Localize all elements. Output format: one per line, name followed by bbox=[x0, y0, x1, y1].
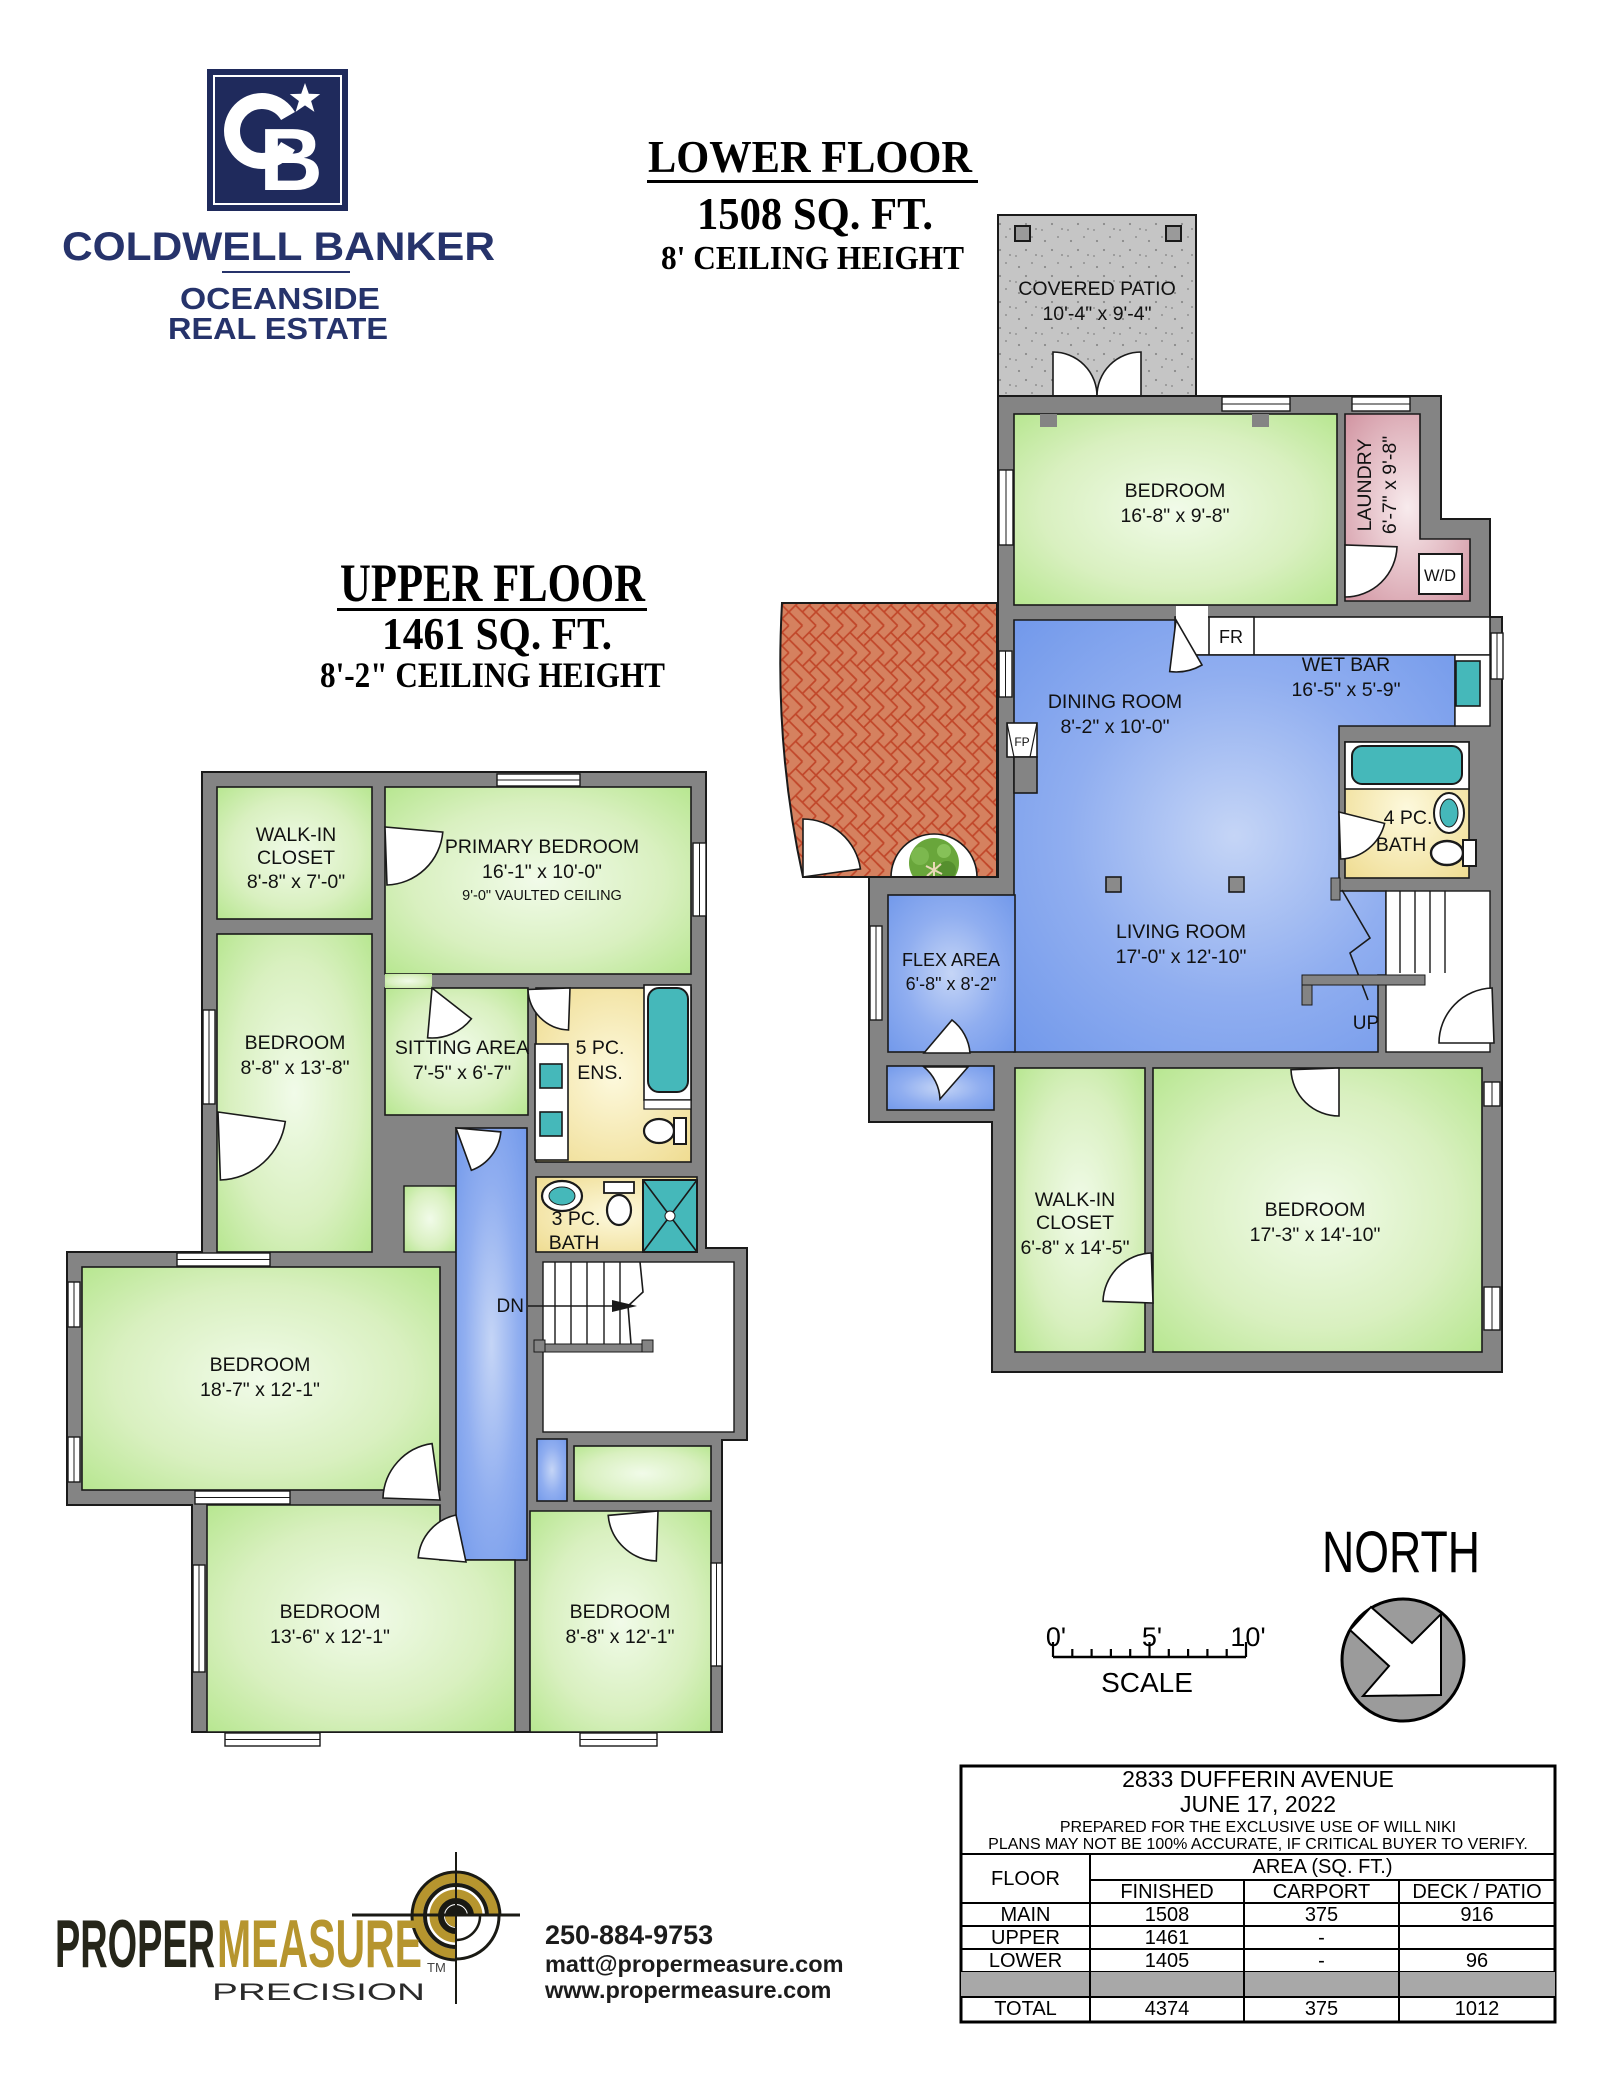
svg-text:5': 5' bbox=[1142, 1622, 1162, 1652]
svg-text:2833 DUFFERIN AVENUE: 2833 DUFFERIN AVENUE bbox=[1122, 1766, 1394, 1792]
svg-text:3 PC.: 3 PC. bbox=[552, 1208, 601, 1230]
svg-text:AREA (SQ. FT.): AREA (SQ. FT.) bbox=[1252, 1856, 1392, 1878]
svg-text:UP: UP bbox=[1353, 1013, 1379, 1034]
svg-text:8'-8" x 12'-1": 8'-8" x 12'-1" bbox=[565, 1626, 674, 1648]
svg-text:NORTH: NORTH bbox=[1322, 1520, 1480, 1585]
svg-text:CARPORT: CARPORT bbox=[1273, 1881, 1370, 1903]
svg-text:DINING ROOM: DINING ROOM bbox=[1048, 691, 1182, 713]
svg-text:UPPER: UPPER bbox=[991, 1927, 1060, 1949]
svg-text:JUNE 17, 2022: JUNE 17, 2022 bbox=[1180, 1791, 1336, 1817]
svg-text:1405: 1405 bbox=[1145, 1950, 1190, 1972]
svg-text:6'-8" x 8'-2": 6'-8" x 8'-2" bbox=[906, 974, 997, 994]
svg-text:FLEX AREA: FLEX AREA bbox=[902, 950, 1000, 970]
svg-text:6'-7" x 9'-8": 6'-7" x 9'-8" bbox=[1379, 436, 1401, 534]
svg-text:BEDROOM: BEDROOM bbox=[1125, 480, 1226, 502]
svg-text:BATH: BATH bbox=[549, 1232, 600, 1254]
svg-text:375: 375 bbox=[1305, 1904, 1338, 1926]
svg-text:BEDROOM: BEDROOM bbox=[570, 1601, 671, 1623]
svg-text:PRECISION: PRECISION bbox=[212, 1979, 425, 2006]
svg-text:PLANS MAY NOT BE 100% ACCURATE: PLANS MAY NOT BE 100% ACCURATE, IF CRITI… bbox=[988, 1836, 1528, 1853]
svg-text:18'-7" x 12'-1": 18'-7" x 12'-1" bbox=[200, 1379, 320, 1401]
svg-text:8'-2" x 10'-0": 8'-2" x 10'-0" bbox=[1060, 716, 1169, 738]
svg-text:1012: 1012 bbox=[1455, 1998, 1500, 2020]
svg-text:BEDROOM: BEDROOM bbox=[210, 1354, 311, 1376]
svg-text:MAIN: MAIN bbox=[1001, 1904, 1051, 1926]
svg-text:MEASURE: MEASURE bbox=[217, 1906, 422, 1982]
svg-text:SCALE: SCALE bbox=[1101, 1667, 1193, 1698]
svg-text:WALK-IN: WALK-IN bbox=[1035, 1189, 1116, 1211]
svg-text:10': 10' bbox=[1230, 1622, 1265, 1652]
svg-text:1461: 1461 bbox=[1145, 1927, 1190, 1949]
svg-text:10'-4" x 9'-4": 10'-4" x 9'-4" bbox=[1042, 303, 1151, 325]
svg-text:TOTAL: TOTAL bbox=[994, 1998, 1057, 2020]
svg-text:-: - bbox=[1318, 1950, 1325, 1972]
svg-text:BEDROOM: BEDROOM bbox=[245, 1032, 346, 1054]
svg-text:REAL ESTATE: REAL ESTATE bbox=[168, 311, 388, 346]
svg-text:8' CEILING HEIGHT: 8' CEILING HEIGHT bbox=[661, 240, 964, 277]
svg-text:DECK / PATIO: DECK / PATIO bbox=[1412, 1881, 1541, 1903]
svg-text:375: 375 bbox=[1305, 1998, 1338, 2020]
svg-text:ENS.: ENS. bbox=[577, 1062, 623, 1084]
svg-text:PRIMARY BEDROOM: PRIMARY BEDROOM bbox=[445, 836, 639, 858]
svg-text:1461 SQ. FT.: 1461 SQ. FT. bbox=[382, 609, 612, 659]
svg-text:PREPARED FOR THE EXCLUSIVE USE: PREPARED FOR THE EXCLUSIVE USE OF WILL N… bbox=[1060, 1819, 1456, 1836]
svg-text:BATH: BATH bbox=[1376, 834, 1427, 856]
svg-text:16'-8" x 9'-8": 16'-8" x 9'-8" bbox=[1120, 505, 1229, 527]
svg-text:17'-0" x 12'-10": 17'-0" x 12'-10" bbox=[1116, 946, 1247, 968]
svg-text:PROPER: PROPER bbox=[55, 1906, 215, 1982]
svg-text:LAUNDRY: LAUNDRY bbox=[1354, 439, 1376, 532]
svg-text:W/D: W/D bbox=[1424, 567, 1456, 585]
svg-text:TM: TM bbox=[427, 1960, 446, 1975]
svg-text:8'-8" x 7'-0": 8'-8" x 7'-0" bbox=[247, 871, 345, 893]
svg-text:FINISHED: FINISHED bbox=[1120, 1881, 1213, 1903]
svg-text:WET BAR: WET BAR bbox=[1302, 654, 1390, 676]
svg-text:LOWER FLOOR: LOWER FLOOR bbox=[648, 131, 973, 182]
svg-text:CLOSET: CLOSET bbox=[257, 847, 335, 869]
svg-text:16'-5" x 5'-9": 16'-5" x 5'-9" bbox=[1291, 679, 1400, 701]
svg-text:WALK-IN: WALK-IN bbox=[256, 824, 337, 846]
svg-text:SITTING AREA: SITTING AREA bbox=[395, 1037, 529, 1059]
svg-text:4374: 4374 bbox=[1145, 1998, 1190, 2020]
svg-text:1508 SQ. FT.: 1508 SQ. FT. bbox=[697, 189, 933, 239]
svg-text:matt@propermeasure.com: matt@propermeasure.com bbox=[545, 1951, 843, 1977]
svg-text:COVERED PATIO: COVERED PATIO bbox=[1018, 278, 1175, 300]
svg-text:8'-2" CEILING HEIGHT: 8'-2" CEILING HEIGHT bbox=[320, 655, 665, 695]
svg-text:4 PC.: 4 PC. bbox=[1384, 807, 1433, 829]
svg-text:FP: FP bbox=[1014, 735, 1029, 749]
svg-text:9'-0" VAULTED CEILING: 9'-0" VAULTED CEILING bbox=[462, 888, 622, 904]
svg-text:LIVING ROOM: LIVING ROOM bbox=[1116, 921, 1246, 943]
svg-text:1508: 1508 bbox=[1145, 1904, 1190, 1926]
svg-text:0': 0' bbox=[1046, 1622, 1066, 1652]
svg-text:96: 96 bbox=[1466, 1950, 1488, 1972]
svg-text:8'-8" x 13'-8": 8'-8" x 13'-8" bbox=[240, 1057, 349, 1079]
svg-text:CLOSET: CLOSET bbox=[1036, 1212, 1114, 1234]
svg-text:BEDROOM: BEDROOM bbox=[280, 1601, 381, 1623]
svg-text:COLDWELL BANKER: COLDWELL BANKER bbox=[62, 225, 495, 269]
svg-text:16'-1" x 10'-0": 16'-1" x 10'-0" bbox=[482, 861, 602, 883]
svg-text:6'-8" x 14'-5": 6'-8" x 14'-5" bbox=[1020, 1237, 1129, 1259]
svg-text:916: 916 bbox=[1460, 1904, 1493, 1926]
svg-text:B: B bbox=[259, 110, 323, 209]
svg-text:UPPER FLOOR: UPPER FLOOR bbox=[340, 553, 646, 613]
svg-text:BEDROOM: BEDROOM bbox=[1265, 1199, 1366, 1221]
svg-text:250-884-9753: 250-884-9753 bbox=[545, 1920, 713, 1950]
svg-text:FLOOR: FLOOR bbox=[991, 1868, 1060, 1890]
svg-text:13'-6" x 12'-1": 13'-6" x 12'-1" bbox=[270, 1626, 390, 1648]
svg-text:-: - bbox=[1318, 1927, 1325, 1949]
svg-text:www.propermeasure.com: www.propermeasure.com bbox=[544, 1977, 831, 2003]
svg-text:5 PC.: 5 PC. bbox=[576, 1037, 625, 1059]
svg-text:FR: FR bbox=[1219, 627, 1243, 647]
svg-text:7'-5" x 6'-7": 7'-5" x 6'-7" bbox=[413, 1062, 511, 1084]
svg-text:17'-3" x 14'-10": 17'-3" x 14'-10" bbox=[1250, 1224, 1381, 1246]
svg-text:DN: DN bbox=[497, 1296, 524, 1317]
svg-text:LOWER: LOWER bbox=[989, 1950, 1062, 1972]
